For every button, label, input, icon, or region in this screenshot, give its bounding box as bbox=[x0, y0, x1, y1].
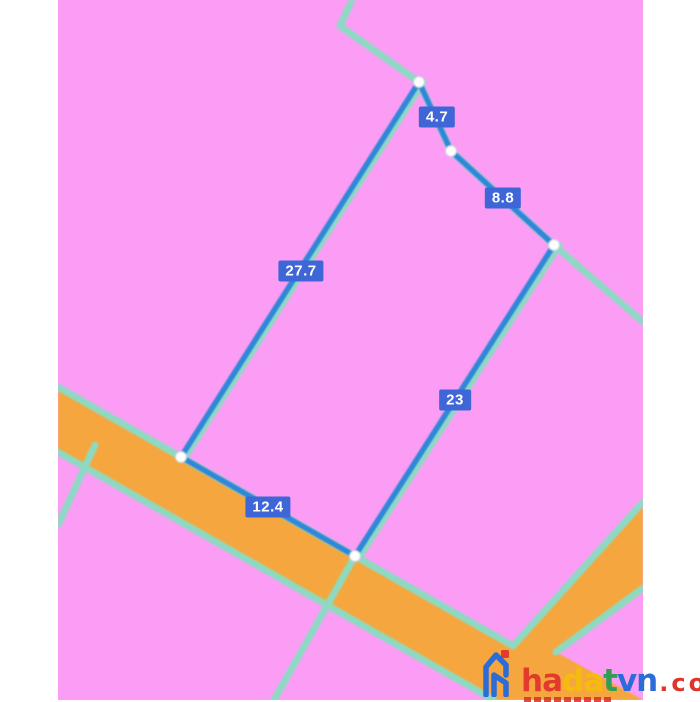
measurement-label-12-4: 12.4 bbox=[245, 497, 290, 518]
watermark-text-t: t bbox=[603, 666, 617, 697]
watermark-text-vn: vn bbox=[617, 666, 657, 697]
watermark: ha da t vn .com.vn bbox=[480, 649, 700, 697]
house-logo-icon bbox=[480, 649, 520, 697]
watermark-text-ha: ha bbox=[521, 666, 562, 697]
vertex-handle-upper-mid[interactable] bbox=[446, 146, 457, 157]
measurement-label-27-7: 27.7 bbox=[278, 261, 323, 282]
watermark-text-da: da bbox=[562, 666, 603, 697]
measurement-label-8-8: 8.8 bbox=[485, 188, 521, 209]
vertex-handle-right[interactable] bbox=[549, 240, 560, 251]
vertex-handle-left[interactable] bbox=[176, 452, 187, 463]
measurement-label-4-7: 4.7 bbox=[419, 107, 455, 128]
map-render bbox=[58, 0, 643, 700]
vertex-handle-bottom[interactable] bbox=[350, 551, 361, 562]
watermark-text-domain: .com.vn bbox=[659, 671, 700, 697]
right-margin bbox=[643, 0, 700, 700]
vertex-handle-top[interactable] bbox=[414, 77, 425, 88]
measurement-label-23: 23 bbox=[439, 390, 471, 411]
left-margin bbox=[0, 0, 58, 700]
map-canvas[interactable]: 4.7 8.8 27.7 23 12.4 bbox=[58, 0, 643, 700]
